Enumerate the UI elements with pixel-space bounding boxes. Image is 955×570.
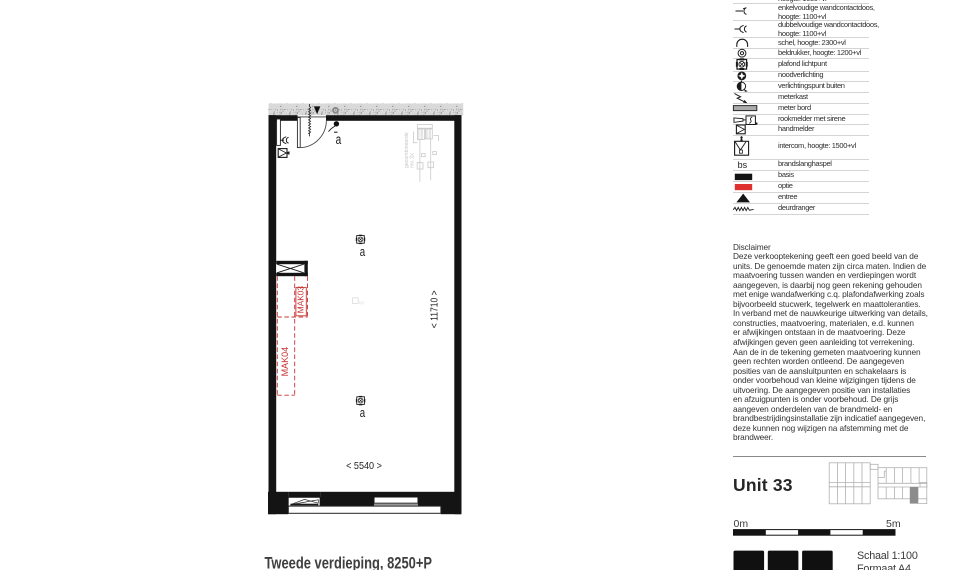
svg-text:< 5540 >: < 5540 >	[346, 460, 382, 472]
svg-text:< 11710 >: < 11710 >	[428, 290, 440, 328]
svg-text:a: a	[360, 405, 366, 420]
svg-text:MAK04: MAK04	[280, 347, 290, 377]
svg-text:mv. 2x: mv. 2x	[410, 153, 416, 168]
svg-text:kv: kv	[359, 300, 365, 306]
svg-text:bs: bs	[738, 160, 748, 170]
svg-text:MAK03: MAK03	[296, 286, 306, 314]
svg-text:a: a	[336, 132, 342, 147]
svg-text:a: a	[360, 244, 366, 259]
